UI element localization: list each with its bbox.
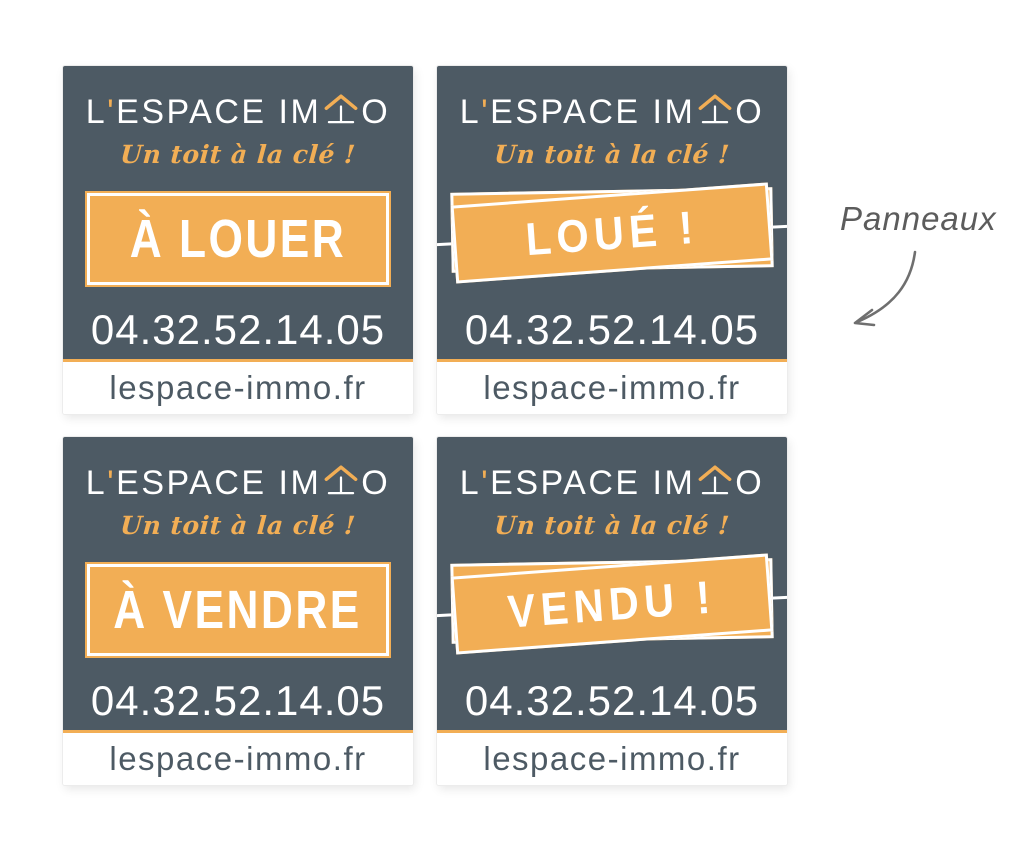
logo-apostrophe: ' — [107, 93, 116, 131]
brand-tagline: Un toit à la clé ! — [437, 140, 787, 169]
logo-text: O — [361, 93, 390, 131]
sign-loue: L'ESPACE IMO Un toit à la clé ! LOUÉ ! 0… — [437, 66, 787, 414]
website-url: lespace-immo.fr — [483, 369, 740, 407]
status-label: LOUÉ ! — [524, 200, 700, 267]
status-label: À VENDRE — [114, 579, 362, 641]
status-banner: À LOUER — [87, 193, 389, 285]
house-icon — [696, 463, 734, 499]
website-url: lespace-immo.fr — [109, 740, 366, 778]
sign-vendu: L'ESPACE IMO Un toit à la clé ! VENDU ! … — [437, 437, 787, 785]
sign-body: L'ESPACE IMO Un toit à la clé ! VENDU ! … — [437, 437, 787, 730]
design-mockup-canvas: L'ESPACE IMO Un toit à la clé ! À LOUER … — [0, 0, 1020, 850]
house-icon — [696, 92, 734, 128]
logo-text: O — [735, 93, 764, 131]
brand-logo: L'ESPACE IMO — [63, 463, 413, 503]
logo-text: ESPACE IM — [116, 464, 321, 502]
logo-text: L — [86, 93, 107, 131]
status-label: VENDU ! — [506, 569, 717, 638]
logo-apostrophe: ' — [107, 464, 116, 502]
logo-text: O — [735, 464, 764, 502]
sign-footer: lespace-immo.fr — [63, 733, 413, 785]
sign-footer: lespace-immo.fr — [437, 733, 787, 785]
sign-a-vendre: L'ESPACE IMO Un toit à la clé ! À VENDRE… — [63, 437, 413, 785]
logo-text: ESPACE IM — [116, 93, 321, 131]
logo-text: L — [460, 93, 481, 131]
phone-number: 04.32.52.14.05 — [437, 306, 787, 354]
brand-tagline: Un toit à la clé ! — [63, 140, 413, 169]
status-banner: À VENDRE — [87, 564, 389, 656]
website-url: lespace-immo.fr — [109, 369, 366, 407]
brand-logo: L'ESPACE IMO — [63, 92, 413, 132]
logo-text: ESPACE IM — [490, 464, 695, 502]
sign-body: L'ESPACE IMO Un toit à la clé ! À LOUER … — [63, 66, 413, 359]
logo-text: L — [460, 464, 481, 502]
curved-arrow-icon — [843, 246, 933, 338]
phone-number: 04.32.52.14.05 — [63, 677, 413, 725]
phone-number: 04.32.52.14.05 — [437, 677, 787, 725]
annotation-label: Panneaux — [840, 200, 1000, 238]
brand-tagline: Un toit à la clé ! — [437, 511, 787, 540]
website-url: lespace-immo.fr — [483, 740, 740, 778]
house-icon — [322, 463, 360, 499]
status-label: À LOUER — [130, 208, 346, 270]
logo-apostrophe: ' — [481, 93, 490, 131]
sign-body: L'ESPACE IMO Un toit à la clé ! À VENDRE… — [63, 437, 413, 730]
sign-body: L'ESPACE IMO Un toit à la clé ! LOUÉ ! 0… — [437, 66, 787, 359]
sign-a-louer: L'ESPACE IMO Un toit à la clé ! À LOUER … — [63, 66, 413, 414]
logo-text: L — [86, 464, 107, 502]
house-icon — [322, 92, 360, 128]
brand-logo: L'ESPACE IMO — [437, 463, 787, 503]
logo-text: O — [361, 464, 390, 502]
brand-logo: L'ESPACE IMO — [437, 92, 787, 132]
brand-tagline: Un toit à la clé ! — [63, 511, 413, 540]
logo-apostrophe: ' — [481, 464, 490, 502]
phone-number: 04.32.52.14.05 — [63, 306, 413, 354]
sign-footer: lespace-immo.fr — [437, 362, 787, 414]
sign-footer: lespace-immo.fr — [63, 362, 413, 414]
logo-text: ESPACE IM — [490, 93, 695, 131]
